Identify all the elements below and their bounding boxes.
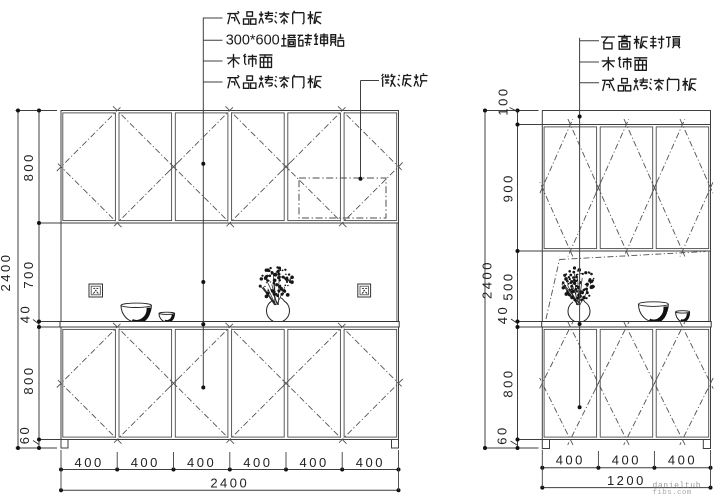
svg-text:500: 500	[501, 271, 516, 300]
svg-text:40: 40	[495, 305, 510, 324]
svg-text:400: 400	[299, 455, 328, 470]
svg-text:1200: 1200	[607, 473, 646, 488]
svg-text:400: 400	[187, 455, 216, 470]
svg-text:40: 40	[18, 304, 33, 323]
svg-text:2400: 2400	[480, 260, 495, 299]
svg-text:400: 400	[556, 453, 585, 468]
svg-text:400: 400	[668, 453, 697, 468]
svg-text:900: 900	[501, 173, 516, 202]
svg-text:400: 400	[131, 455, 160, 470]
svg-text:400: 400	[74, 455, 103, 470]
svg-text:100: 100	[496, 86, 511, 115]
svg-text:400: 400	[356, 455, 385, 470]
svg-text:300*600: 300*600	[226, 33, 280, 49]
svg-text:700: 700	[21, 259, 36, 288]
svg-text:400: 400	[612, 453, 641, 468]
svg-text:2400: 2400	[210, 476, 249, 491]
svg-text:800: 800	[21, 152, 36, 181]
svg-text:800: 800	[21, 365, 36, 394]
svg-text:2400: 2400	[0, 253, 13, 292]
svg-text:800: 800	[501, 368, 516, 397]
svg-text:60: 60	[17, 425, 32, 444]
svg-text:fibs.com: fibs.com	[653, 489, 692, 497]
svg-text:400: 400	[243, 455, 272, 470]
svg-text:60: 60	[495, 425, 510, 444]
